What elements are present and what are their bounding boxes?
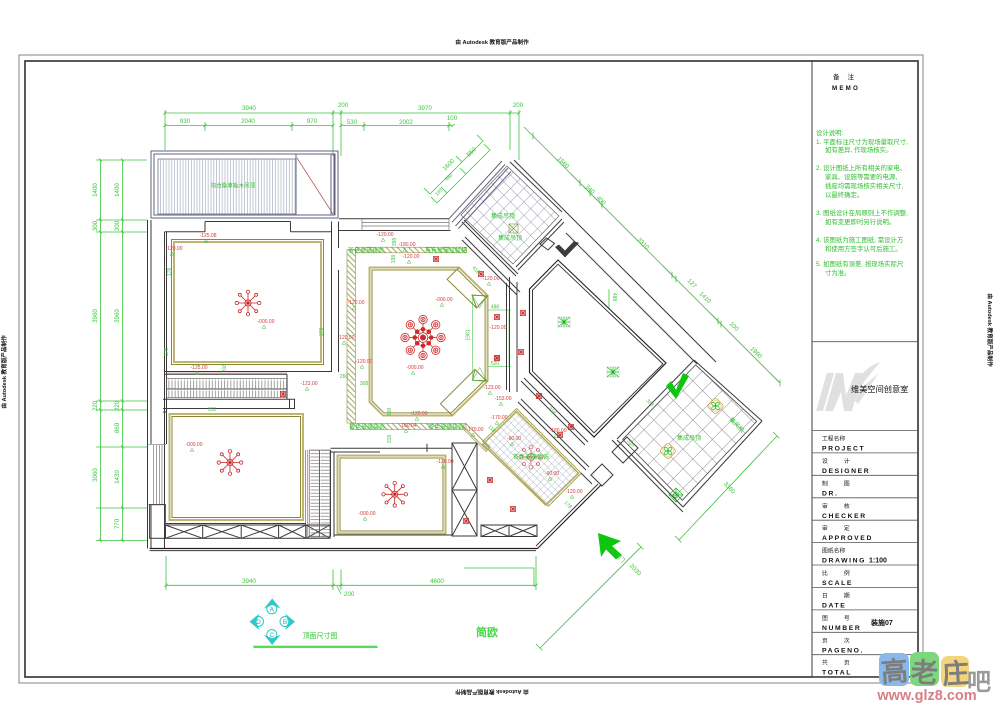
svg-text:由 Autodesk 教育版产品制作: 由 Autodesk 教育版产品制作 [455,38,529,46]
svg-text:B: B [283,619,287,626]
svg-text:DESIGNER: DESIGNER [822,468,870,475]
svg-text:PROJECT: PROJECT [822,446,865,453]
svg-text:-120.00: -120.00 [356,359,373,365]
svg-text:488: 488 [491,305,500,311]
svg-text:860: 860 [114,422,121,433]
svg-text:-000.00: -000.00 [258,319,275,325]
svg-text:260: 260 [340,374,349,380]
svg-text:318: 318 [222,364,228,373]
svg-text:-120.00: -120.00 [411,411,428,417]
svg-text:TOTAL: TOTAL [822,670,852,677]
svg-text:-125.08: -125.08 [200,233,217,239]
svg-text:老: 老 [910,657,939,688]
svg-text:-120.00: -120.00 [437,459,454,465]
svg-text:C: C [269,632,274,639]
svg-text:-120.00: -120.00 [166,246,183,252]
svg-text:APPROVED: APPROVED [822,535,873,542]
svg-text:集成吊顶: 集成吊顶 [677,434,701,442]
svg-text:庄: 庄 [941,657,970,689]
svg-text:-180.00: -180.00 [550,428,567,434]
svg-text:插座均需现场核实相关尺寸,: 插座均需现场核实相关尺寸, [825,181,904,190]
svg-text:200: 200 [338,102,349,109]
svg-text:-120.00: -120.00 [338,335,355,341]
svg-text:集成吊顶: 集成吊顶 [498,234,522,242]
svg-text:220: 220 [114,400,121,411]
svg-text:-180.04: -180.04 [400,423,417,429]
svg-text:图纸名称: 图纸名称 [822,547,845,555]
svg-text:如有变更即时另行说明。: 如有变更即时另行说明。 [825,217,895,226]
svg-text:5. 如图纸有误差, 按现场实际尺: 5. 如图纸有误差, 按现场实际尺 [816,259,904,268]
svg-text:茶色玻璃装饰: 茶色玻璃装饰 [348,247,384,255]
svg-text:398: 398 [392,238,398,247]
svg-text:3940: 3940 [242,105,256,112]
svg-text:www.glz8.com: www.glz8.com [876,688,976,704]
svg-text:集成吊顶: 集成吊顶 [491,212,515,220]
svg-text:198: 198 [391,255,397,264]
svg-text:MEMO: MEMO [832,85,860,92]
svg-text:装施07: 装施07 [870,618,893,627]
svg-text:220: 220 [92,400,99,411]
svg-text:-123.00: -123.00 [484,385,501,391]
svg-text:简欧: 简欧 [476,625,498,639]
svg-text:3960: 3960 [92,309,99,323]
svg-text:200: 200 [513,102,524,109]
svg-text:-000.00: -000.00 [186,442,203,448]
svg-text:高: 高 [880,655,909,688]
svg-text:-153.00: -153.00 [495,396,512,402]
svg-text:茶色玻璃装饰: 茶色玻璃装饰 [513,453,549,461]
svg-text:如有差异, 作现场核实。: 如有差异, 作现场核实。 [825,145,892,154]
svg-text:930: 930 [180,118,191,125]
svg-text:520: 520 [491,361,500,367]
svg-text:1. 平面标注尺寸为现场量取尺寸,: 1. 平面标注尺寸为现场量取尺寸, [816,137,908,146]
svg-text:1400: 1400 [114,183,121,197]
svg-text:-120.00: -120.00 [490,325,507,331]
svg-text:SCALE: SCALE [822,580,853,587]
svg-text:1400: 1400 [92,183,99,197]
svg-text:由 Autodesk 教育版产品制作: 由 Autodesk 教育版产品制作 [455,688,529,696]
svg-text:1430: 1430 [114,470,121,484]
svg-text:PAGENO.: PAGENO. [822,647,864,654]
svg-text:CHECKER: CHECKER [822,513,867,520]
svg-text:DRAWING: DRAWING [822,558,866,565]
svg-text:-170.00: -170.00 [491,415,508,421]
svg-text:顶面尺寸图: 顶面尺寸图 [303,631,338,640]
svg-text:DATE: DATE [822,602,846,609]
svg-text:寸为准。: 寸为准。 [825,268,851,277]
svg-text:398: 398 [387,408,393,417]
svg-text:3970: 3970 [418,105,432,112]
svg-text:设计说明:: 设计说明: [816,128,844,137]
svg-text:970: 970 [307,118,318,125]
svg-text:由 Autodesk 教育版产品制作: 由 Autodesk 教育版产品制作 [0,335,8,409]
svg-text:茶色玻璃拉轨格: 茶色玻璃拉轨格 [425,247,467,255]
svg-text:-123.00: -123.00 [301,381,318,387]
svg-text:3960: 3960 [114,309,121,323]
svg-text:3940: 3940 [242,578,256,585]
svg-text:NUMBER: NUMBER [822,625,861,632]
svg-text:-120.00: -120.00 [377,232,394,238]
svg-text:-180.00: -180.00 [399,242,416,248]
svg-text:家具、设施等需要的电源、: 家具、设施等需要的电源、 [825,172,902,181]
svg-text:350: 350 [208,407,217,413]
svg-text:茶色玻璃装饰: 茶色玻璃装饰 [349,423,385,431]
svg-text:-90.00: -90.00 [545,471,559,477]
svg-text:-125.00: -125.00 [191,365,208,371]
svg-text:D: D [256,619,261,626]
svg-text:4600: 4600 [430,578,444,585]
svg-text:300: 300 [114,220,121,231]
svg-text:以最终确定。: 以最终确定。 [825,190,863,199]
svg-text:1:100: 1:100 [869,558,887,565]
svg-text:100: 100 [447,115,458,122]
svg-text:3. 图纸设计在局原则上不作调整,: 3. 图纸设计在局原则上不作调整, [816,208,908,217]
svg-text:A: A [270,606,275,613]
svg-text:-000.00: -000.00 [359,511,376,517]
svg-text:3060: 3060 [92,468,99,482]
svg-text:300: 300 [92,220,99,231]
svg-text:2. 设计图纸上所有相关的家电、: 2. 设计图纸上所有相关的家电、 [816,163,906,172]
svg-text:由 Autodesk 教育版产品制作: 由 Autodesk 教育版产品制作 [986,293,994,367]
svg-text:-60.00: -60.00 [507,436,521,442]
svg-text:178: 178 [167,268,173,277]
svg-text:维美空间创意室: 维美空间创意室 [851,384,908,394]
svg-text:茶色玻璃装饰: 茶色玻璃装饰 [428,423,464,431]
svg-text:200: 200 [344,591,355,598]
svg-text:-120.00: -120.00 [348,300,365,306]
svg-text:和使用方签字认可后施工。: 和使用方签字认可后施工。 [825,244,902,253]
svg-text:-120.00: -120.00 [483,276,500,282]
svg-text:488: 488 [611,293,617,302]
svg-text:工程名称: 工程名称 [822,435,845,443]
svg-text:178: 178 [319,328,325,337]
svg-text:-000.00: -000.00 [407,365,424,371]
svg-text:2040: 2040 [241,118,255,125]
svg-text:-120.00: -120.00 [403,254,420,260]
svg-text:318: 318 [387,435,393,444]
svg-text:530: 530 [347,119,358,126]
svg-text:-000.00: -000.00 [436,297,453,303]
svg-text:4. 该图纸为施工图纸, 需设计方: 4. 该图纸为施工图纸, 需设计方 [816,235,903,244]
svg-text:770: 770 [114,518,121,529]
svg-text:DR.: DR. [822,490,839,497]
svg-text:1981: 1981 [466,329,472,340]
svg-text:-170.00: -170.00 [467,427,484,433]
svg-text:阳台桑拿板木吊顶: 阳台桑拿板木吊顶 [211,182,256,190]
svg-text:308: 308 [360,381,369,387]
svg-text:2002: 2002 [399,119,413,126]
svg-text:-120.00: -120.00 [566,489,583,495]
svg-text:178: 178 [164,348,170,357]
